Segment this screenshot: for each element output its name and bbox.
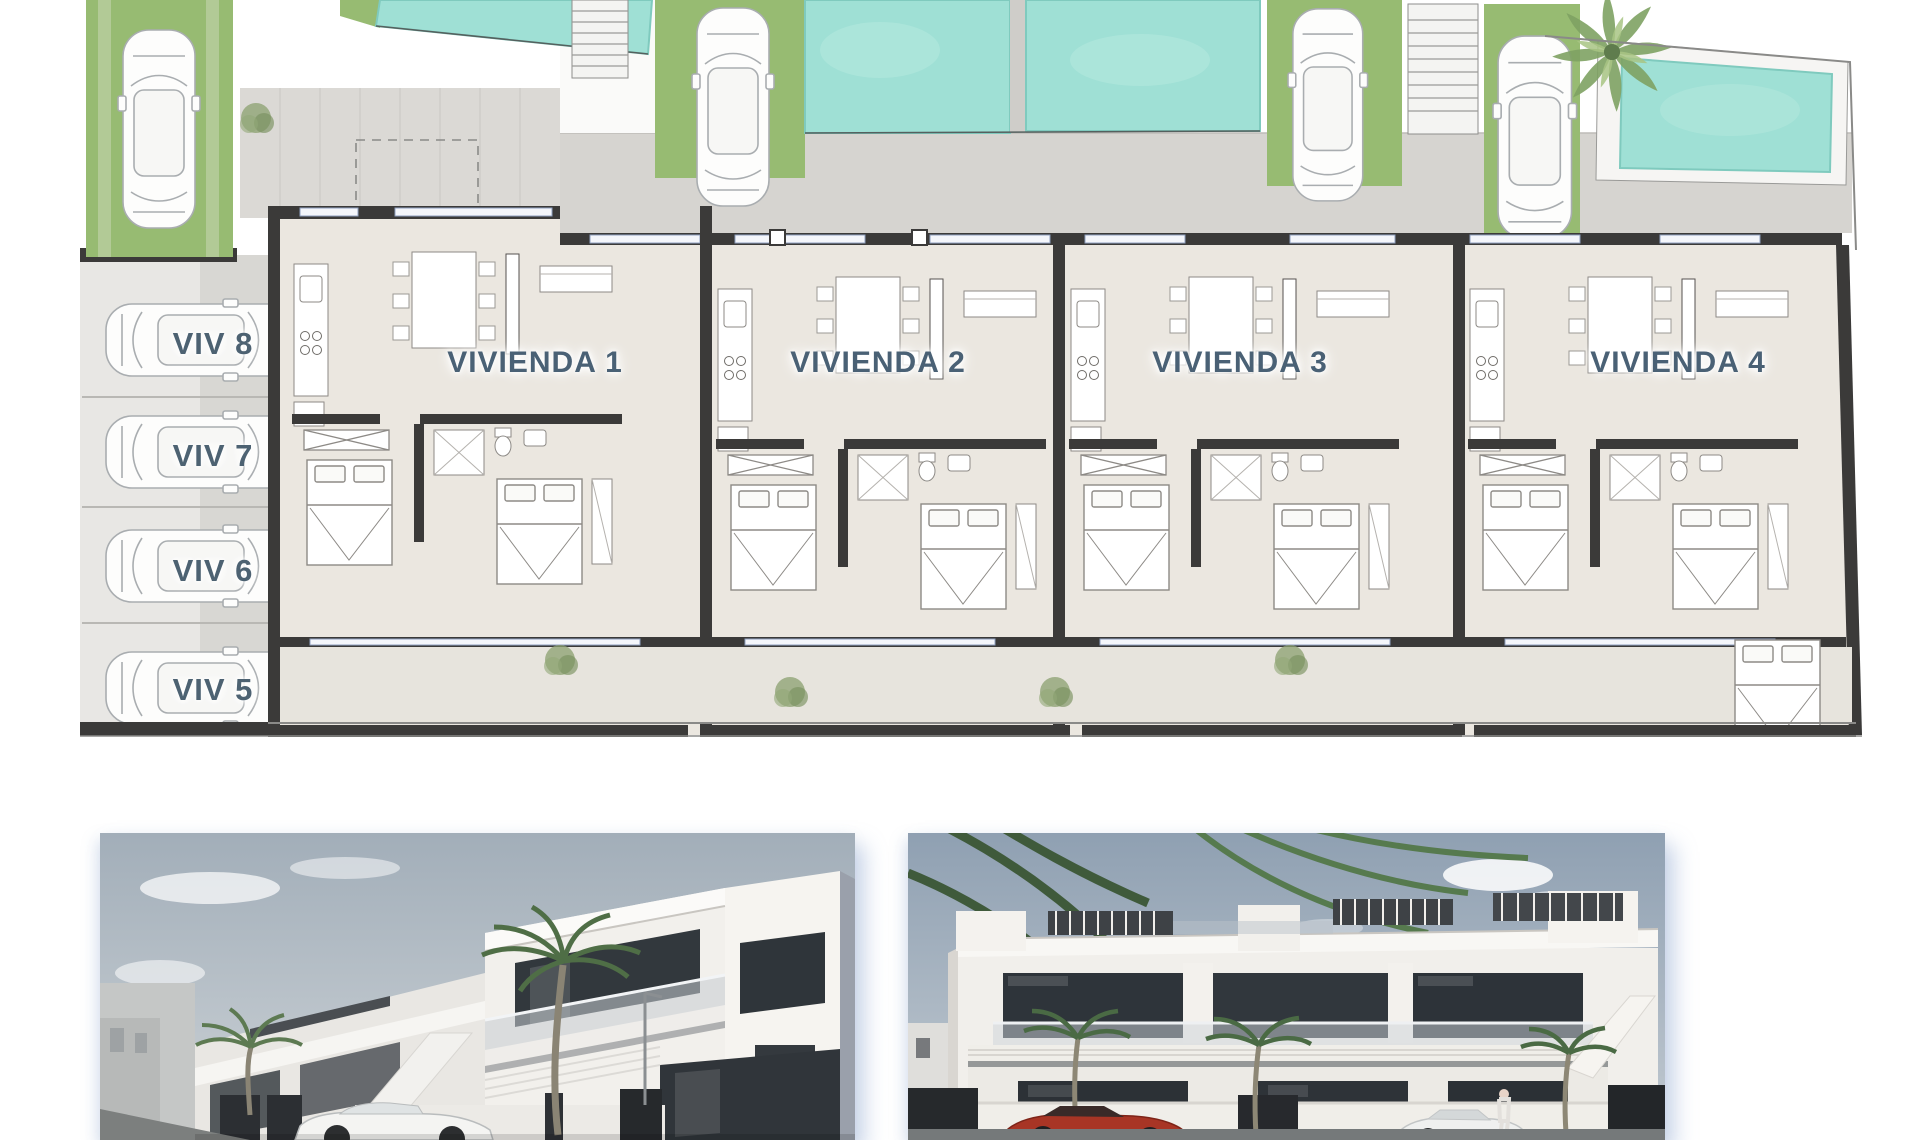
window-band (300, 208, 552, 216)
exterior-render-left (100, 833, 855, 1140)
unit-label-vivienda-2: VIVIENDA 2 (790, 346, 966, 380)
stairs-icon (1408, 4, 1478, 134)
parking-label-viv-8: VIV 8 (173, 326, 254, 362)
stairs-icon (572, 0, 628, 78)
rear-terrace (80, 637, 1862, 737)
road (908, 1129, 1665, 1140)
unit-label-vivienda-4: VIVIENDA 4 (1590, 346, 1766, 380)
column (912, 230, 927, 245)
unit-label-vivienda-1: VIVIENDA 1 (447, 346, 623, 380)
car-top-icon (1493, 36, 1577, 238)
parking-label-viv-6: VIV 6 (173, 553, 254, 589)
unit-label-vivienda-3: VIVIENDA 3 (1152, 346, 1328, 380)
car-top-icon (118, 30, 200, 228)
column (770, 230, 785, 245)
car-top-icon (692, 8, 774, 206)
exterior-render-right (908, 833, 1665, 1140)
brochure-page: VIVIENDA 1 VIVIENDA 2 VIVIENDA 3 VIVIEND… (0, 0, 1920, 1140)
car-top-icon (1288, 9, 1368, 201)
parking-label-viv-5: VIV 5 (173, 672, 254, 708)
parking-label-viv-7: VIV 7 (173, 438, 254, 474)
